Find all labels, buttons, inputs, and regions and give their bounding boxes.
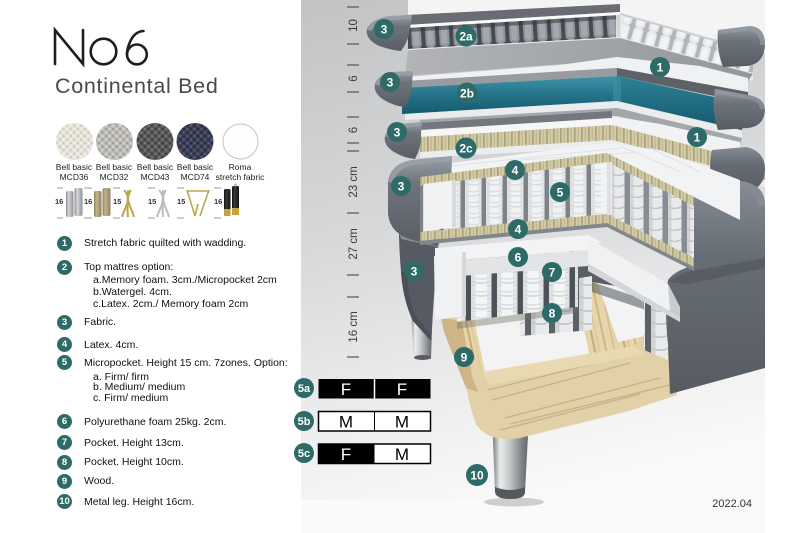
- svg-text:2b: 2b: [460, 87, 474, 101]
- svg-text:5b: 5b: [298, 416, 311, 428]
- svg-text:23 cm: 23 cm: [348, 166, 360, 197]
- svg-text:2a: 2a: [459, 30, 473, 44]
- svg-text:F: F: [397, 380, 407, 399]
- svg-text:10: 10: [470, 469, 484, 483]
- svg-text:3: 3: [398, 180, 405, 194]
- svg-text:9: 9: [461, 351, 468, 365]
- svg-text:7: 7: [549, 266, 556, 280]
- svg-text:3: 3: [394, 126, 401, 140]
- svg-text:5: 5: [557, 186, 564, 200]
- svg-text:M: M: [395, 413, 409, 432]
- svg-text:5a: 5a: [298, 383, 311, 395]
- svg-text:M: M: [395, 445, 409, 464]
- svg-text:F: F: [341, 445, 351, 464]
- svg-text:6: 6: [348, 127, 360, 133]
- svg-text:27 cm: 27 cm: [348, 228, 360, 259]
- svg-text:2c: 2c: [459, 142, 473, 156]
- svg-text:6: 6: [348, 75, 360, 81]
- svg-text:6: 6: [515, 251, 522, 265]
- svg-text:3: 3: [387, 76, 394, 90]
- svg-text:10: 10: [348, 19, 360, 32]
- svg-text:3: 3: [381, 23, 388, 37]
- svg-text:4: 4: [512, 164, 519, 178]
- svg-text:M: M: [339, 413, 353, 432]
- svg-text:3: 3: [411, 265, 418, 279]
- svg-text:1: 1: [694, 131, 701, 145]
- svg-text:5c: 5c: [298, 448, 310, 460]
- svg-text:F: F: [341, 380, 351, 399]
- svg-text:8: 8: [549, 307, 556, 321]
- svg-text:4: 4: [515, 223, 522, 237]
- svg-text:1: 1: [657, 61, 664, 75]
- svg-text:2022.04: 2022.04: [712, 498, 752, 510]
- svg-text:16 cm: 16 cm: [348, 311, 360, 342]
